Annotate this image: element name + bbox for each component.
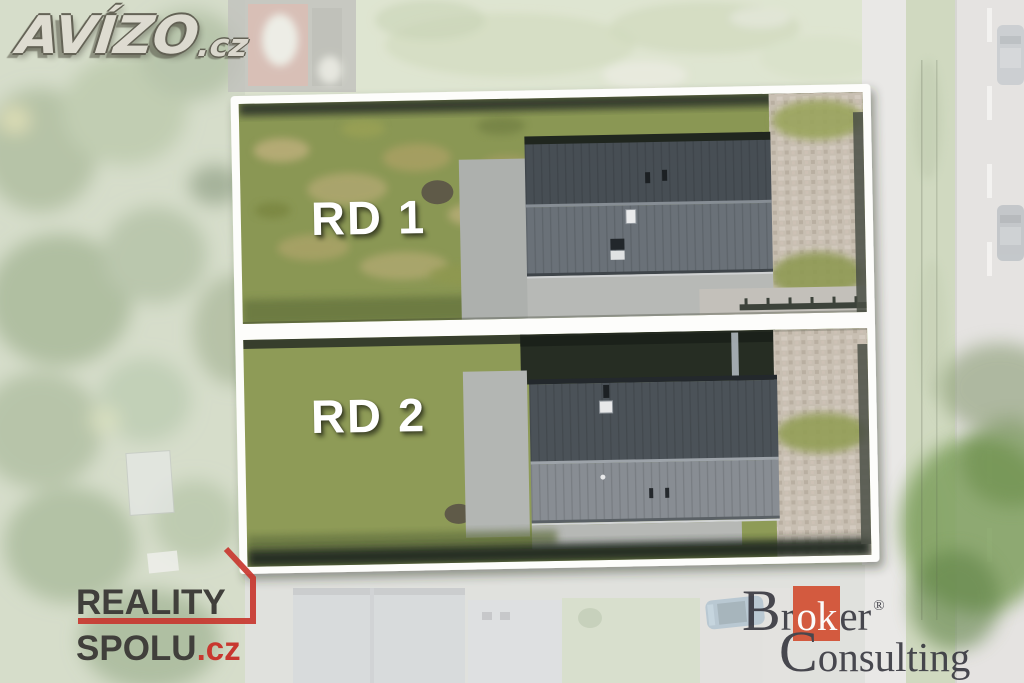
rd2-house <box>529 375 780 526</box>
rd1-house <box>524 132 773 279</box>
plot-label-rd2: RD 2 <box>311 391 427 440</box>
reality-spolu-logo: REALITY SPOLU.cz <box>76 585 241 666</box>
listing-photo: AVÍZO.cz RD 1 RD 2 REALITY SPOLU.cz Brok… <box>0 0 1024 683</box>
plot-label-rd1: RD 1 <box>311 193 427 242</box>
reality-spolu-line1: REALITY <box>76 585 241 620</box>
consulting-word: Consulting <box>779 623 970 681</box>
reality-spolu-line2: SPOLU.cz <box>76 631 241 666</box>
avizo-logo: AVÍZO.cz <box>15 10 252 62</box>
broker-consulting-logo: Broker® Consulting <box>742 582 970 681</box>
avizo-logo-text: AVÍZO <box>14 6 200 66</box>
avizo-logo-tld: .cz <box>196 28 250 64</box>
registered-trademark-icon: ® <box>873 598 884 614</box>
reality-spolu-tld: .cz <box>197 630 241 667</box>
aerial-photo <box>0 0 1024 683</box>
